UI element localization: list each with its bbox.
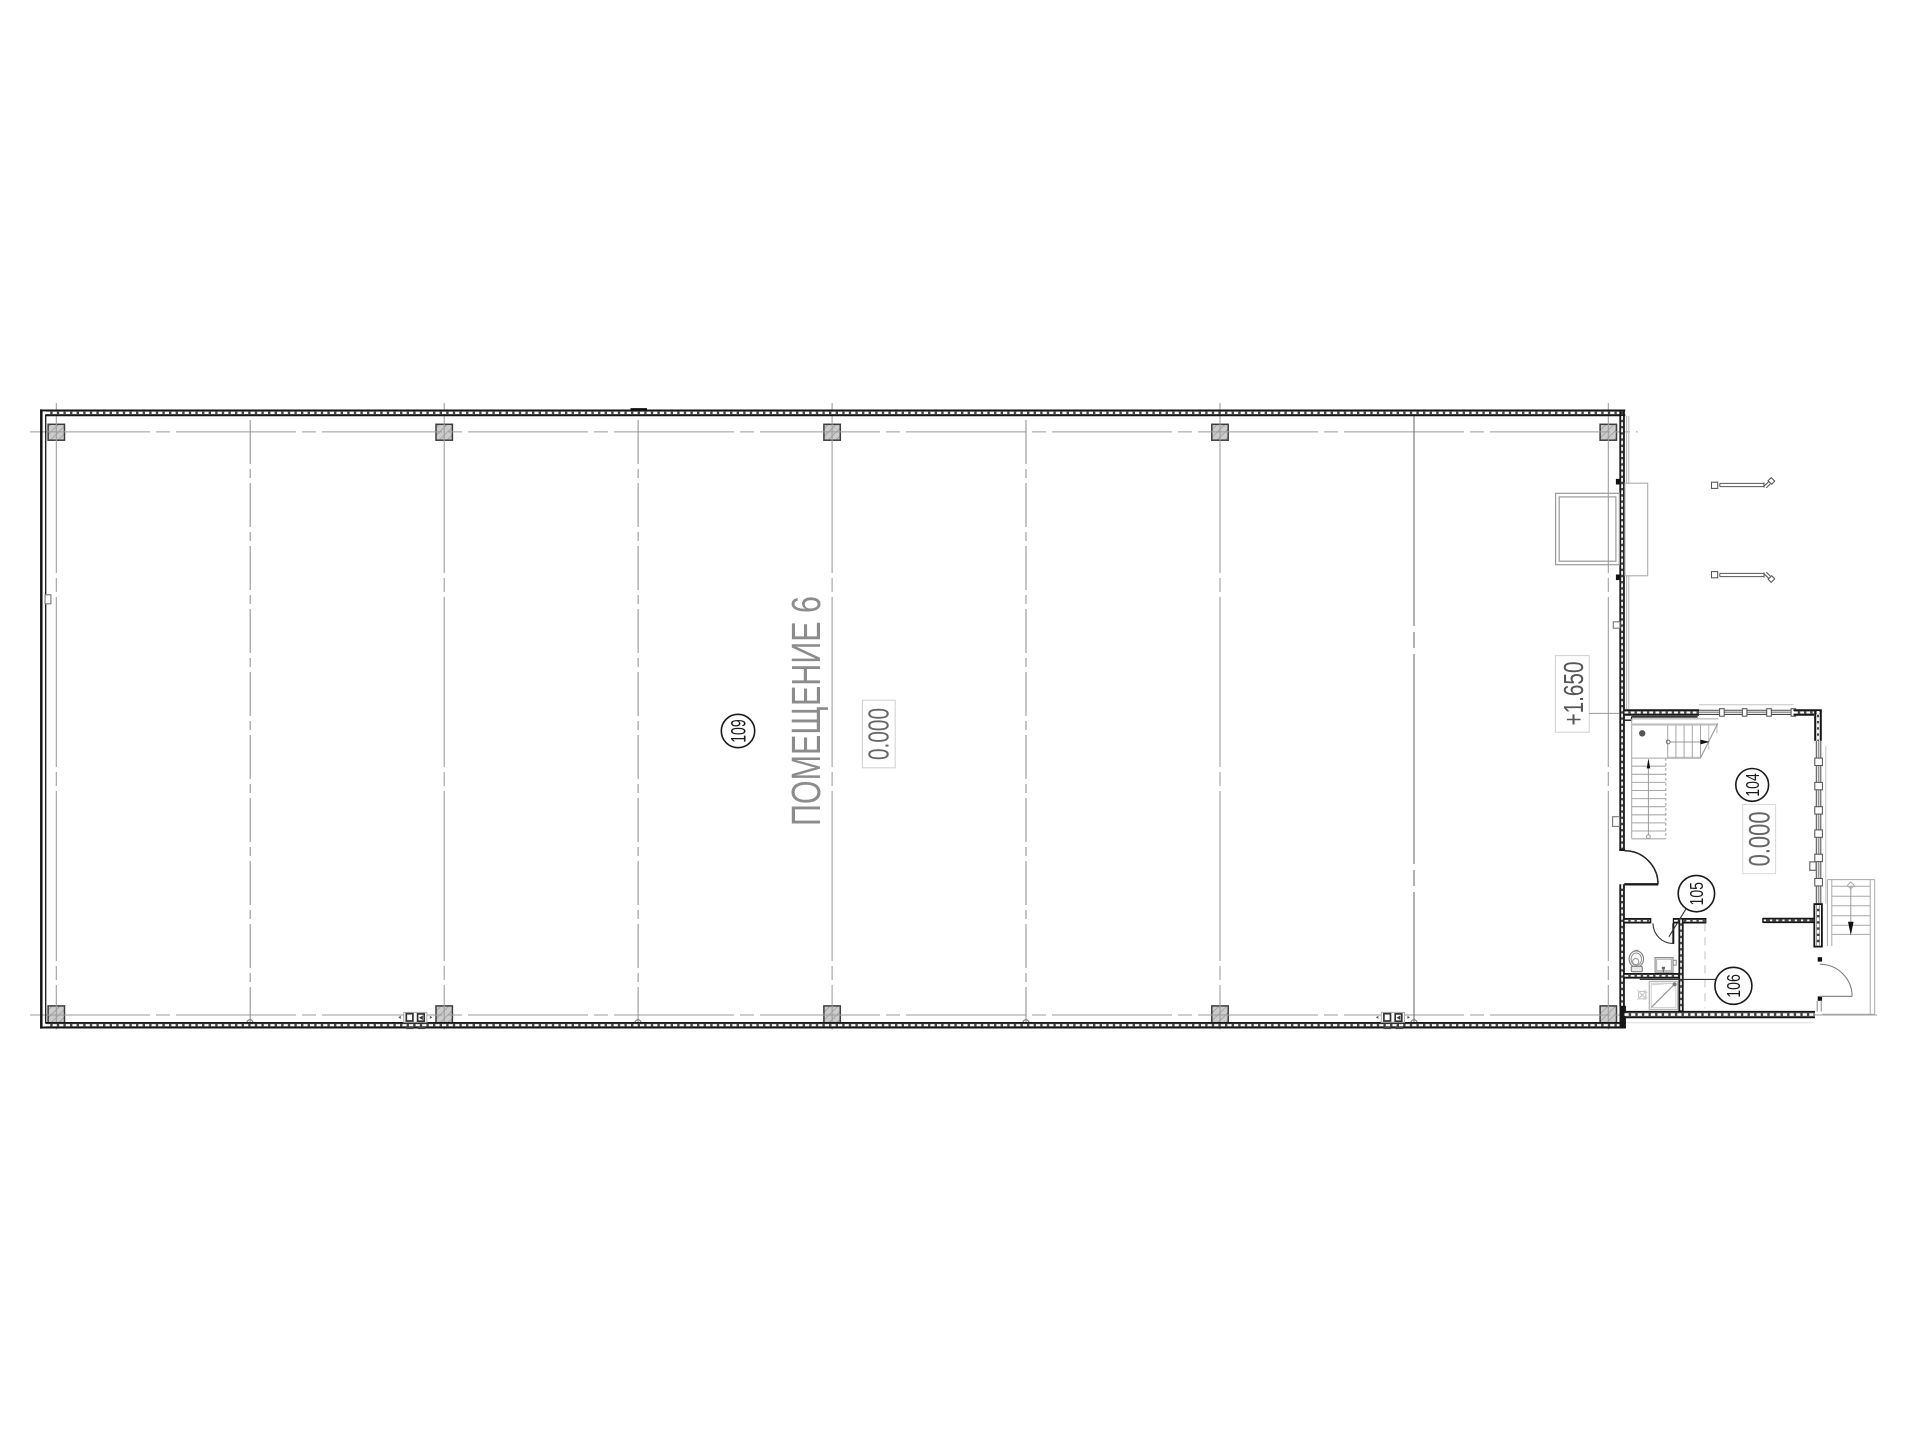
svg-text:109: 109: [726, 719, 750, 743]
svg-text:ПОМЕЩЕНИЕ 6: ПОМЕЩЕНИЕ 6: [783, 596, 829, 826]
svg-text:106: 106: [1723, 974, 1744, 998]
svg-text:105: 105: [1686, 882, 1707, 906]
svg-text:0.000: 0.000: [1744, 811, 1777, 866]
svg-text:104: 104: [1742, 773, 1763, 797]
svg-text:0.000: 0.000: [864, 708, 896, 760]
svg-text:+1.650: +1.650: [1558, 662, 1589, 726]
